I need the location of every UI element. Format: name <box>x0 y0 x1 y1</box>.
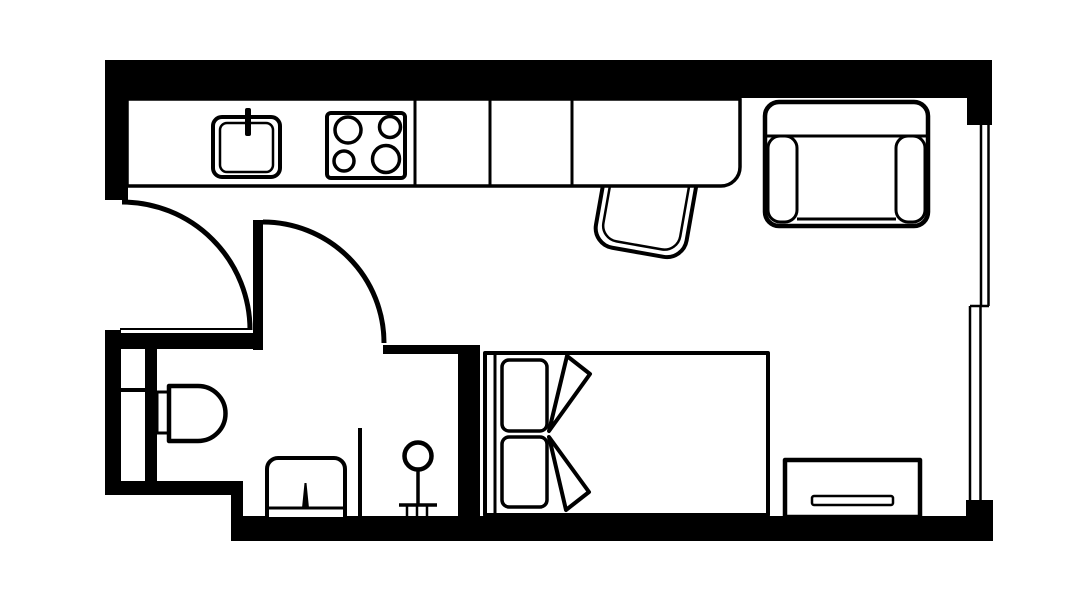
wall-bathroom-right-vertical <box>458 345 480 541</box>
wall-left-upper <box>105 60 128 200</box>
duct-divider <box>121 388 145 392</box>
wall-bottom <box>231 516 993 541</box>
armchair-body <box>765 102 928 226</box>
wall-top-right-corner <box>967 60 992 125</box>
wall-bathroom-bottom <box>105 481 243 495</box>
wall-left-lower <box>105 330 121 493</box>
wall-bathroom-plumbing <box>145 349 157 483</box>
bed-pillow-bottom <box>502 437 547 507</box>
sink-faucet <box>245 108 251 136</box>
bed-pillow-top <box>502 360 547 431</box>
wall-bathroom-top <box>108 333 262 349</box>
wall-bottom-right-corner <box>966 500 993 541</box>
bathroom-door-swing-arc <box>263 222 384 343</box>
toilet-bowl <box>169 386 226 441</box>
shower-head <box>405 443 432 470</box>
bathroom-door-leaf <box>253 220 263 350</box>
floorplan-svg <box>0 0 1092 614</box>
wall-bathroom-right-horizontal <box>383 345 460 354</box>
wall-top <box>105 60 990 98</box>
entry-door-swing-arc <box>122 202 250 330</box>
floorplan-canvas <box>0 0 1092 614</box>
dresser <box>785 460 920 517</box>
